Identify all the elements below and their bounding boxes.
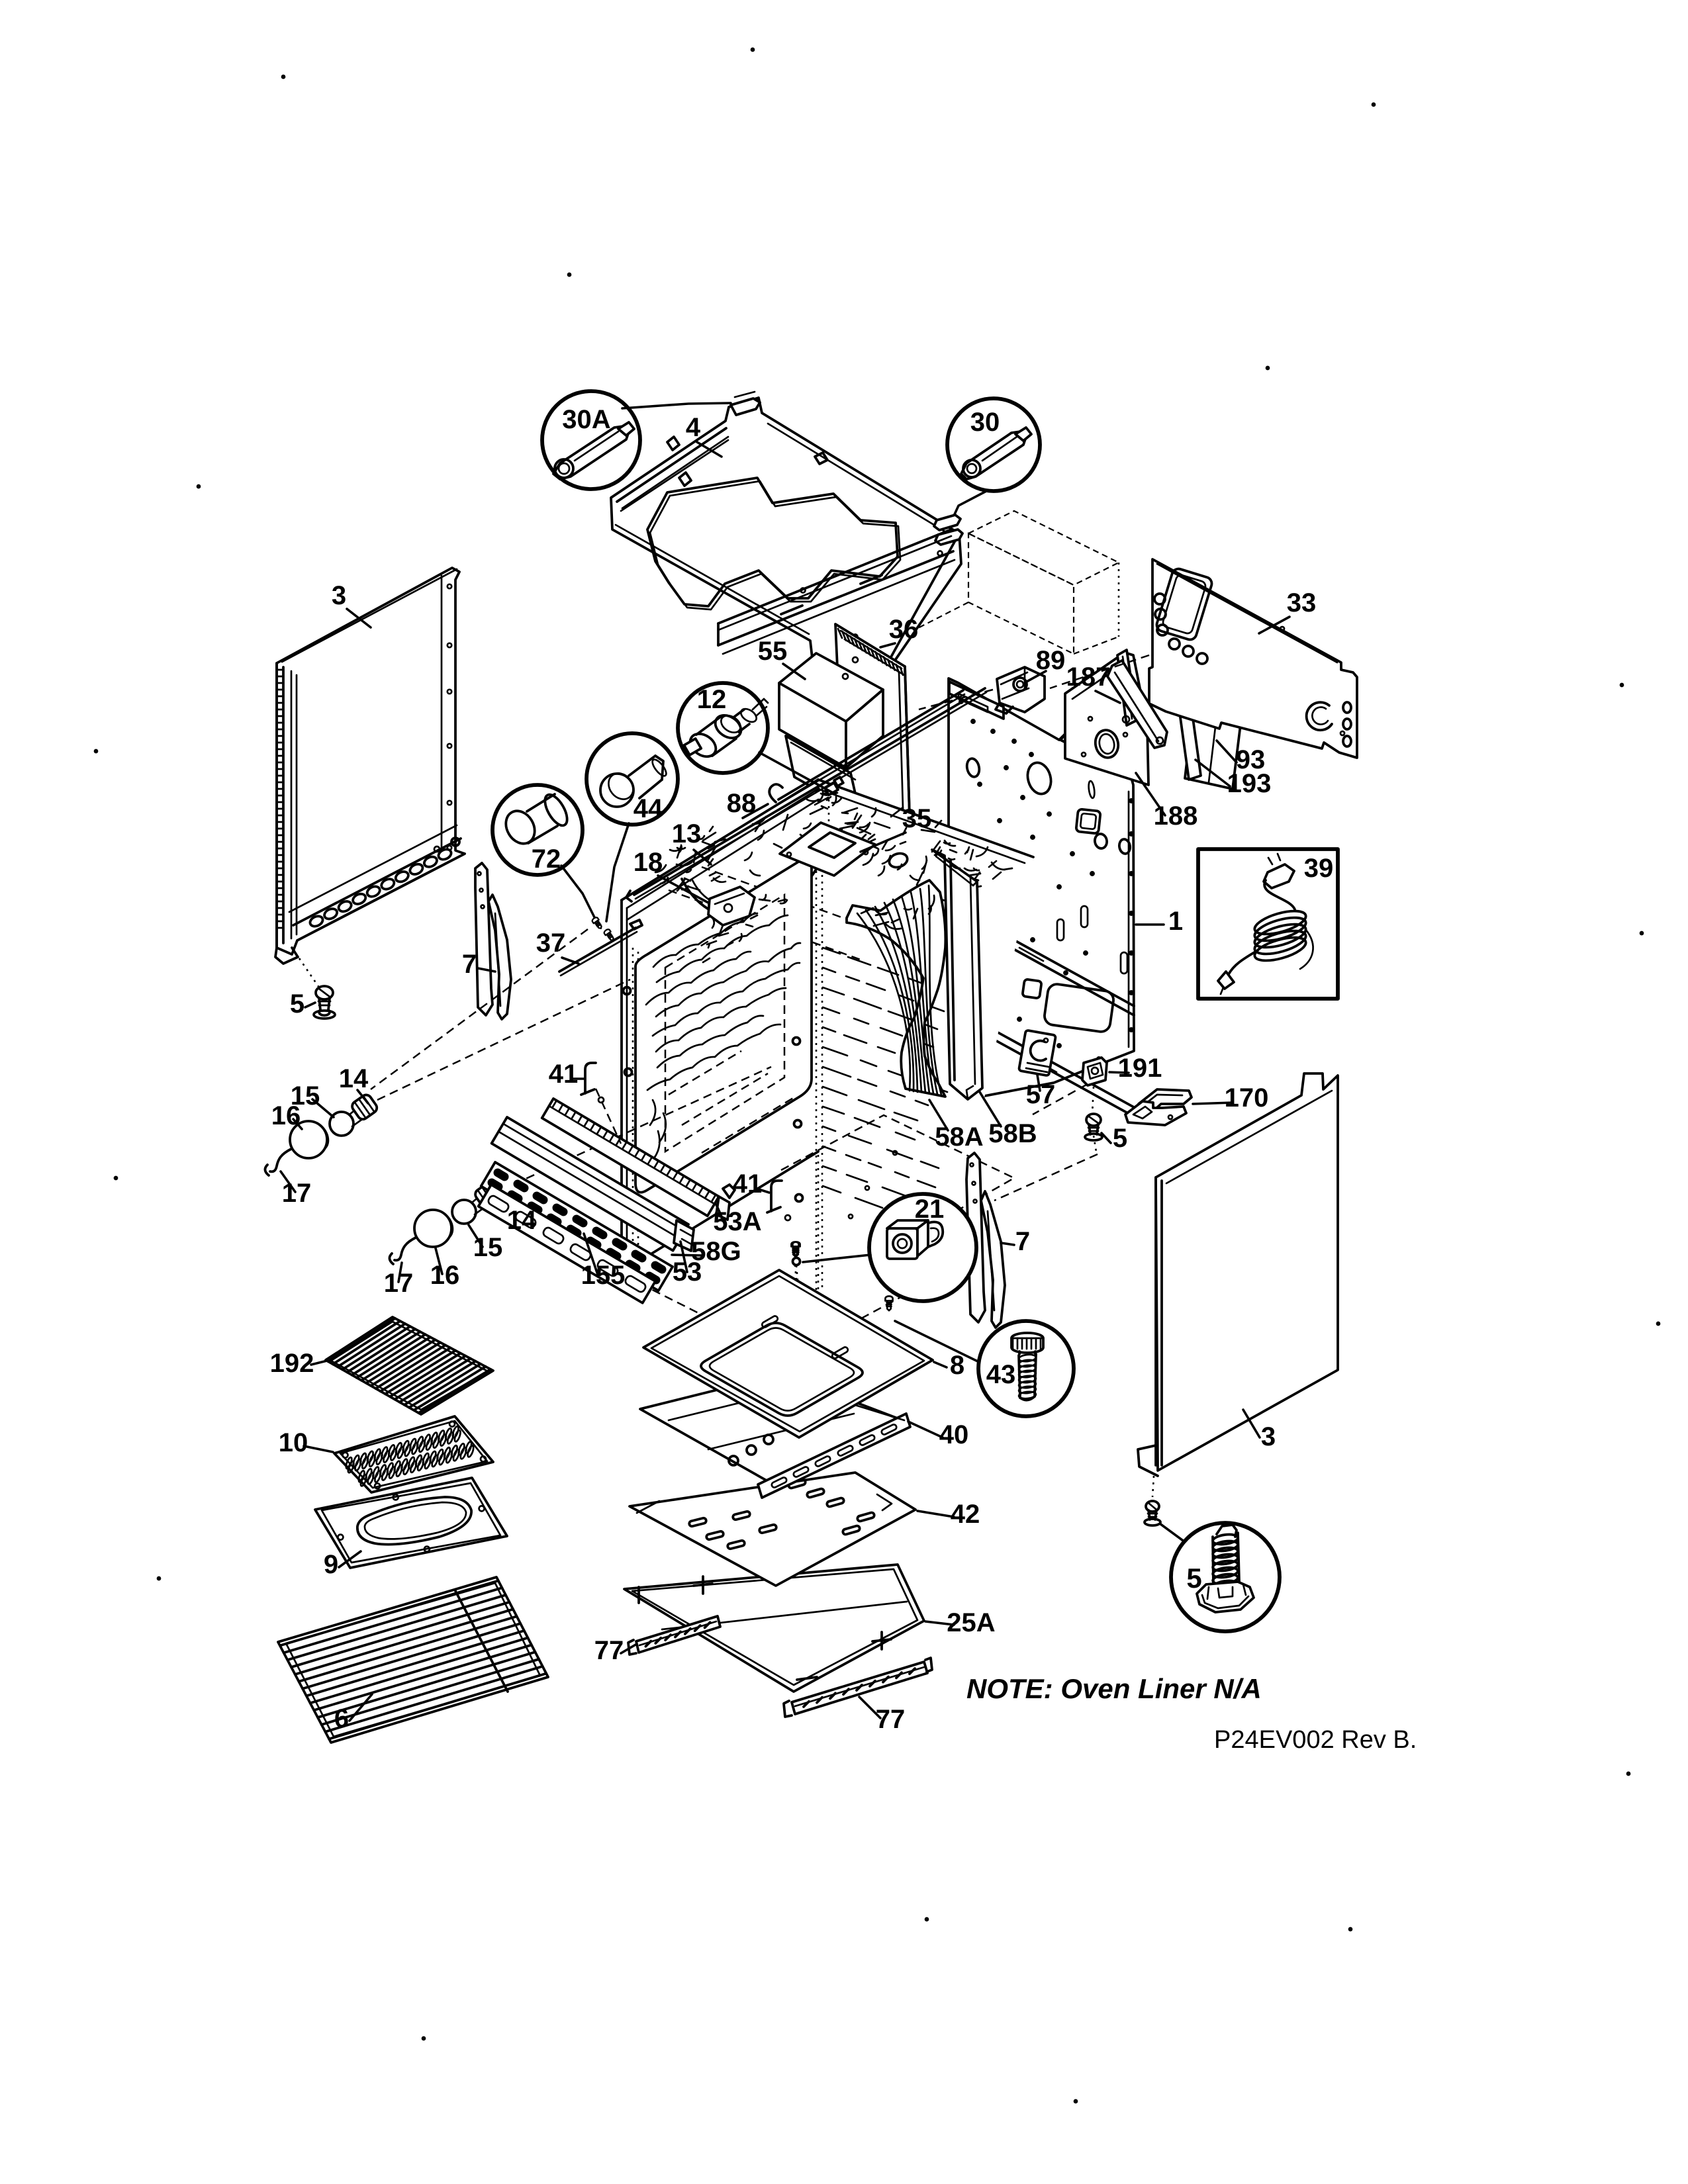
- svg-text:191: 191: [1118, 1054, 1162, 1083]
- svg-text:25A: 25A: [947, 1608, 995, 1637]
- svg-text:5: 5: [290, 989, 305, 1019]
- svg-text:14: 14: [339, 1064, 369, 1093]
- svg-text:41: 41: [733, 1169, 763, 1199]
- svg-text:53A: 53A: [713, 1207, 761, 1236]
- svg-text:40: 40: [939, 1420, 969, 1449]
- svg-text:NOTE: Oven Liner N/A: NOTE: Oven Liner N/A: [966, 1673, 1262, 1704]
- svg-text:12: 12: [697, 685, 727, 714]
- svg-text:41: 41: [549, 1060, 579, 1089]
- svg-text:18: 18: [633, 848, 663, 877]
- svg-text:17: 17: [384, 1269, 414, 1298]
- svg-text:53: 53: [673, 1257, 702, 1287]
- svg-text:P24EV002 Rev B.: P24EV002 Rev B.: [1214, 1726, 1417, 1754]
- svg-text:155: 155: [581, 1261, 626, 1290]
- svg-text:17: 17: [282, 1179, 312, 1208]
- svg-text:170: 170: [1225, 1083, 1269, 1113]
- svg-text:30A: 30A: [562, 405, 610, 434]
- svg-text:42: 42: [951, 1500, 980, 1529]
- svg-text:33: 33: [1287, 588, 1317, 617]
- svg-text:9: 9: [324, 1550, 338, 1579]
- svg-text:187: 187: [1066, 662, 1111, 692]
- svg-text:77: 77: [594, 1636, 624, 1665]
- svg-text:16: 16: [271, 1101, 301, 1130]
- svg-text:77: 77: [876, 1705, 906, 1734]
- svg-text:5: 5: [1186, 1563, 1201, 1594]
- svg-text:35: 35: [902, 804, 932, 833]
- svg-text:15: 15: [473, 1233, 503, 1262]
- svg-text:58A: 58A: [935, 1122, 983, 1152]
- svg-text:89: 89: [1036, 646, 1066, 675]
- svg-text:72: 72: [532, 844, 561, 874]
- svg-text:39: 39: [1304, 854, 1334, 883]
- svg-text:58B: 58B: [988, 1119, 1037, 1148]
- svg-text:43: 43: [986, 1360, 1016, 1389]
- svg-text:57: 57: [1026, 1080, 1056, 1109]
- svg-text:3: 3: [332, 581, 346, 610]
- svg-text:6: 6: [334, 1704, 349, 1733]
- svg-text:193: 193: [1227, 769, 1272, 798]
- svg-text:10: 10: [279, 1428, 308, 1457]
- svg-text:4: 4: [686, 413, 701, 442]
- svg-text:3: 3: [1261, 1422, 1276, 1451]
- svg-text:16: 16: [430, 1261, 460, 1290]
- svg-text:37: 37: [536, 929, 566, 958]
- svg-text:5: 5: [1113, 1124, 1127, 1153]
- svg-text:88: 88: [727, 789, 757, 818]
- svg-text:7: 7: [1015, 1227, 1030, 1256]
- svg-text:36: 36: [889, 615, 919, 644]
- svg-text:188: 188: [1154, 801, 1198, 831]
- svg-text:14: 14: [507, 1206, 537, 1235]
- svg-text:30: 30: [970, 408, 1000, 437]
- svg-text:13: 13: [672, 819, 702, 848]
- svg-text:55: 55: [758, 637, 788, 666]
- svg-text:8: 8: [950, 1351, 964, 1380]
- svg-text:192: 192: [270, 1349, 314, 1378]
- svg-text:44: 44: [633, 794, 663, 823]
- svg-text:7: 7: [462, 950, 477, 979]
- svg-text:1: 1: [1168, 907, 1183, 936]
